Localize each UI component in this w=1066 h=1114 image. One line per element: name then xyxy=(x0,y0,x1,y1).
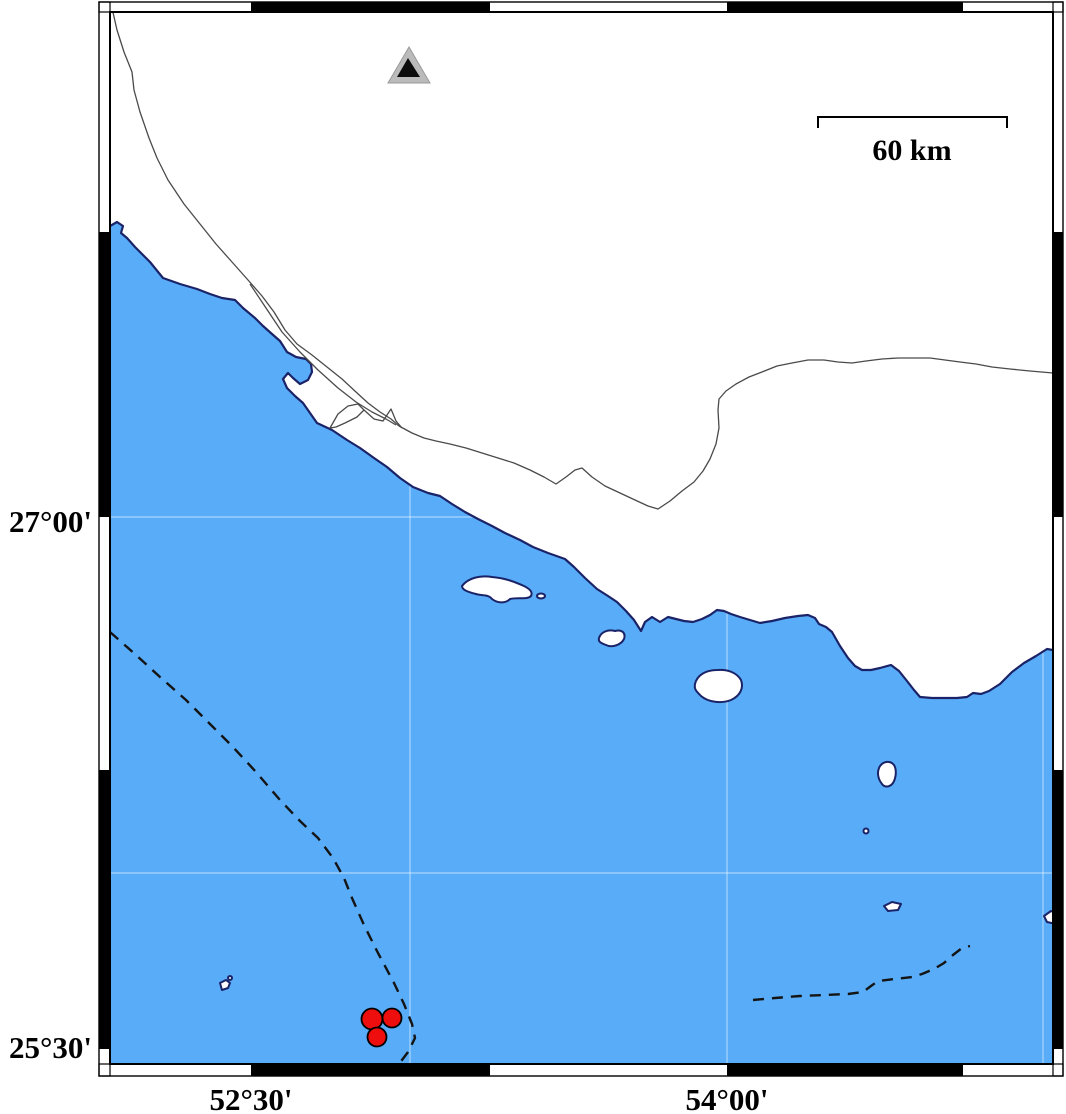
frame-segment-left-2 xyxy=(99,770,110,1049)
frame-segment-bottom-2 xyxy=(727,1064,963,1076)
island-small-center xyxy=(599,630,625,646)
frame-segment-bottom-1 xyxy=(251,1064,490,1076)
frame-segment-left-1 xyxy=(99,232,110,517)
epicenter-circle-3 xyxy=(368,1028,387,1047)
islet-east-small xyxy=(864,829,869,834)
island-round-center xyxy=(695,670,742,702)
frame-corner-top-right xyxy=(1053,2,1063,12)
islet-southwest xyxy=(220,980,230,990)
inland-line-east xyxy=(399,358,1053,509)
frame-corner-bottom-right xyxy=(1053,1064,1063,1076)
frame-segment-right-2 xyxy=(1053,770,1063,1049)
inland-loop xyxy=(330,404,364,428)
inland-loop-tail xyxy=(364,409,402,428)
frame-segment-right-1 xyxy=(1053,232,1063,517)
island-teardrop-east xyxy=(878,762,896,787)
longitude-label-54E: 54°00' xyxy=(637,1082,817,1114)
scalebar-bracket xyxy=(818,117,1007,128)
map-canvas: 27°00' 25°30' 52°30' 54°00' 60 km xyxy=(0,0,1066,1114)
frame-segment-top-2 xyxy=(727,2,963,12)
sea-area xyxy=(110,222,1053,1064)
islet-southwest-tiny xyxy=(228,976,232,980)
epicenter-circle-2 xyxy=(383,1009,402,1028)
scalebar-label: 60 km xyxy=(822,134,1002,168)
latitude-label-25-30N: 25°30' xyxy=(0,1030,92,1066)
frame-corner-bottom-left xyxy=(99,1064,110,1076)
islet-west xyxy=(537,594,545,599)
station-marker xyxy=(388,47,430,83)
frame-segment-top-1 xyxy=(251,2,490,12)
latitude-label-27N: 27°00' xyxy=(0,504,92,540)
epicenter-circle-1 xyxy=(362,1009,383,1030)
frame-corner-top-left xyxy=(99,2,110,12)
longitude-label-52-30E: 52°30' xyxy=(161,1082,341,1114)
